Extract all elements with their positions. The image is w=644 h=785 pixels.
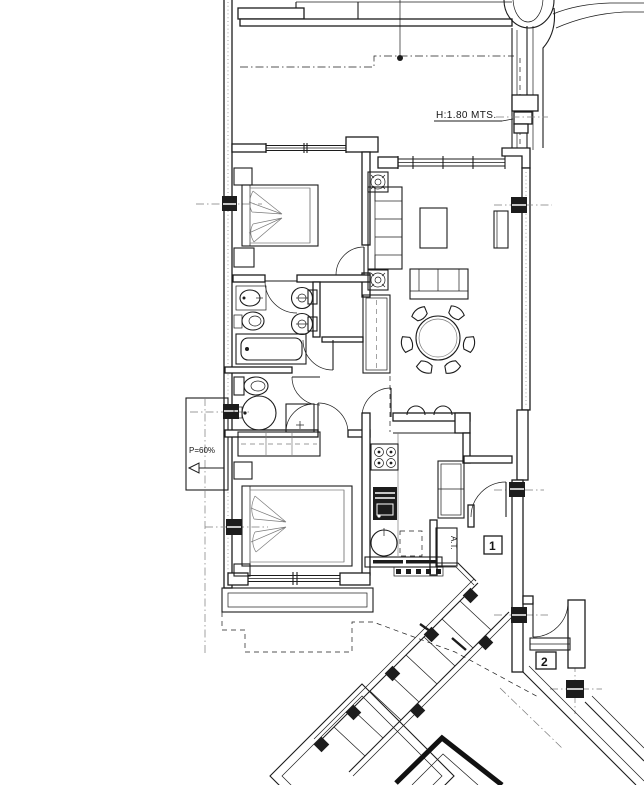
dishwasher: [400, 531, 422, 556]
entry-marker-2: 2: [536, 652, 556, 669]
door-entry-1: [471, 482, 506, 517]
height-note: H:1.80 MTS.: [436, 110, 497, 121]
ramp-arrow: [189, 463, 199, 473]
dining-chair: [400, 335, 414, 353]
exterior-stair-structure: [270, 579, 644, 785]
column-marker: [205, 519, 268, 535]
round-washbasin: [234, 396, 276, 430]
entry-areas: 1 2: [484, 536, 585, 669]
dining-chair: [415, 359, 434, 376]
svg-text:1: 1: [489, 539, 496, 553]
living-room-furniture: [363, 172, 508, 432]
bedroom-1-furniture: [234, 168, 318, 267]
toilet: [234, 377, 268, 395]
door-bedroom-1: [336, 247, 364, 275]
floor-plan-canvas: P=60%: [0, 0, 644, 785]
technical-closet-label: A.T.: [449, 536, 458, 550]
dining-chair: [442, 359, 461, 376]
bathtub: [236, 334, 306, 364]
side-lamp-table: [368, 270, 388, 290]
double-bed: [242, 185, 318, 246]
bathroom-2-fixtures: [234, 377, 314, 432]
column-marker: [196, 196, 262, 211]
side-lamp-table: [368, 172, 388, 192]
column-marker: [494, 482, 544, 497]
nightstand: [234, 248, 254, 267]
dining-chair: [410, 305, 429, 324]
nightstand: [234, 462, 252, 479]
bedroom-2-furniture: [234, 432, 352, 576]
kitchen-fixtures: A.T.: [371, 406, 464, 566]
door-entry-2: [533, 602, 568, 637]
oven: [373, 487, 397, 520]
hall-wardrobe: [363, 295, 390, 373]
entry-marker-1: 1: [484, 536, 502, 554]
double-bed: [242, 486, 352, 566]
column-marker: [494, 607, 548, 623]
dining-table: [400, 304, 476, 376]
coffee-table: [420, 208, 447, 248]
shower: [286, 404, 314, 432]
bidet: [234, 312, 264, 330]
technical-closet: A.T.: [436, 528, 458, 566]
bathroom-1-fixtures: [234, 286, 317, 364]
door-bathroom-1: [265, 281, 297, 313]
cooktop: [371, 444, 398, 470]
sofa-small: [410, 269, 468, 299]
door-hall: [303, 340, 333, 370]
tv-unit: [494, 211, 508, 248]
door-bathroom-2: [292, 377, 320, 405]
fridge-tall-unit: [438, 461, 464, 518]
nightstand: [234, 168, 252, 185]
washbasin: [236, 286, 266, 310]
dining-chair: [462, 335, 476, 353]
door-bedroom-2: [318, 403, 348, 433]
sofa-large: [368, 187, 402, 269]
annotations: H:1.80 MTS.: [434, 110, 513, 121]
terrace-planter: [222, 588, 373, 612]
kitchen-sink: [371, 528, 397, 556]
roof-overhang-dashed: [222, 612, 540, 698]
floor-plan-drawing: P=60%: [0, 0, 644, 785]
ramp-note: P=60%: [189, 446, 215, 455]
svg-text:2: 2: [541, 655, 548, 669]
